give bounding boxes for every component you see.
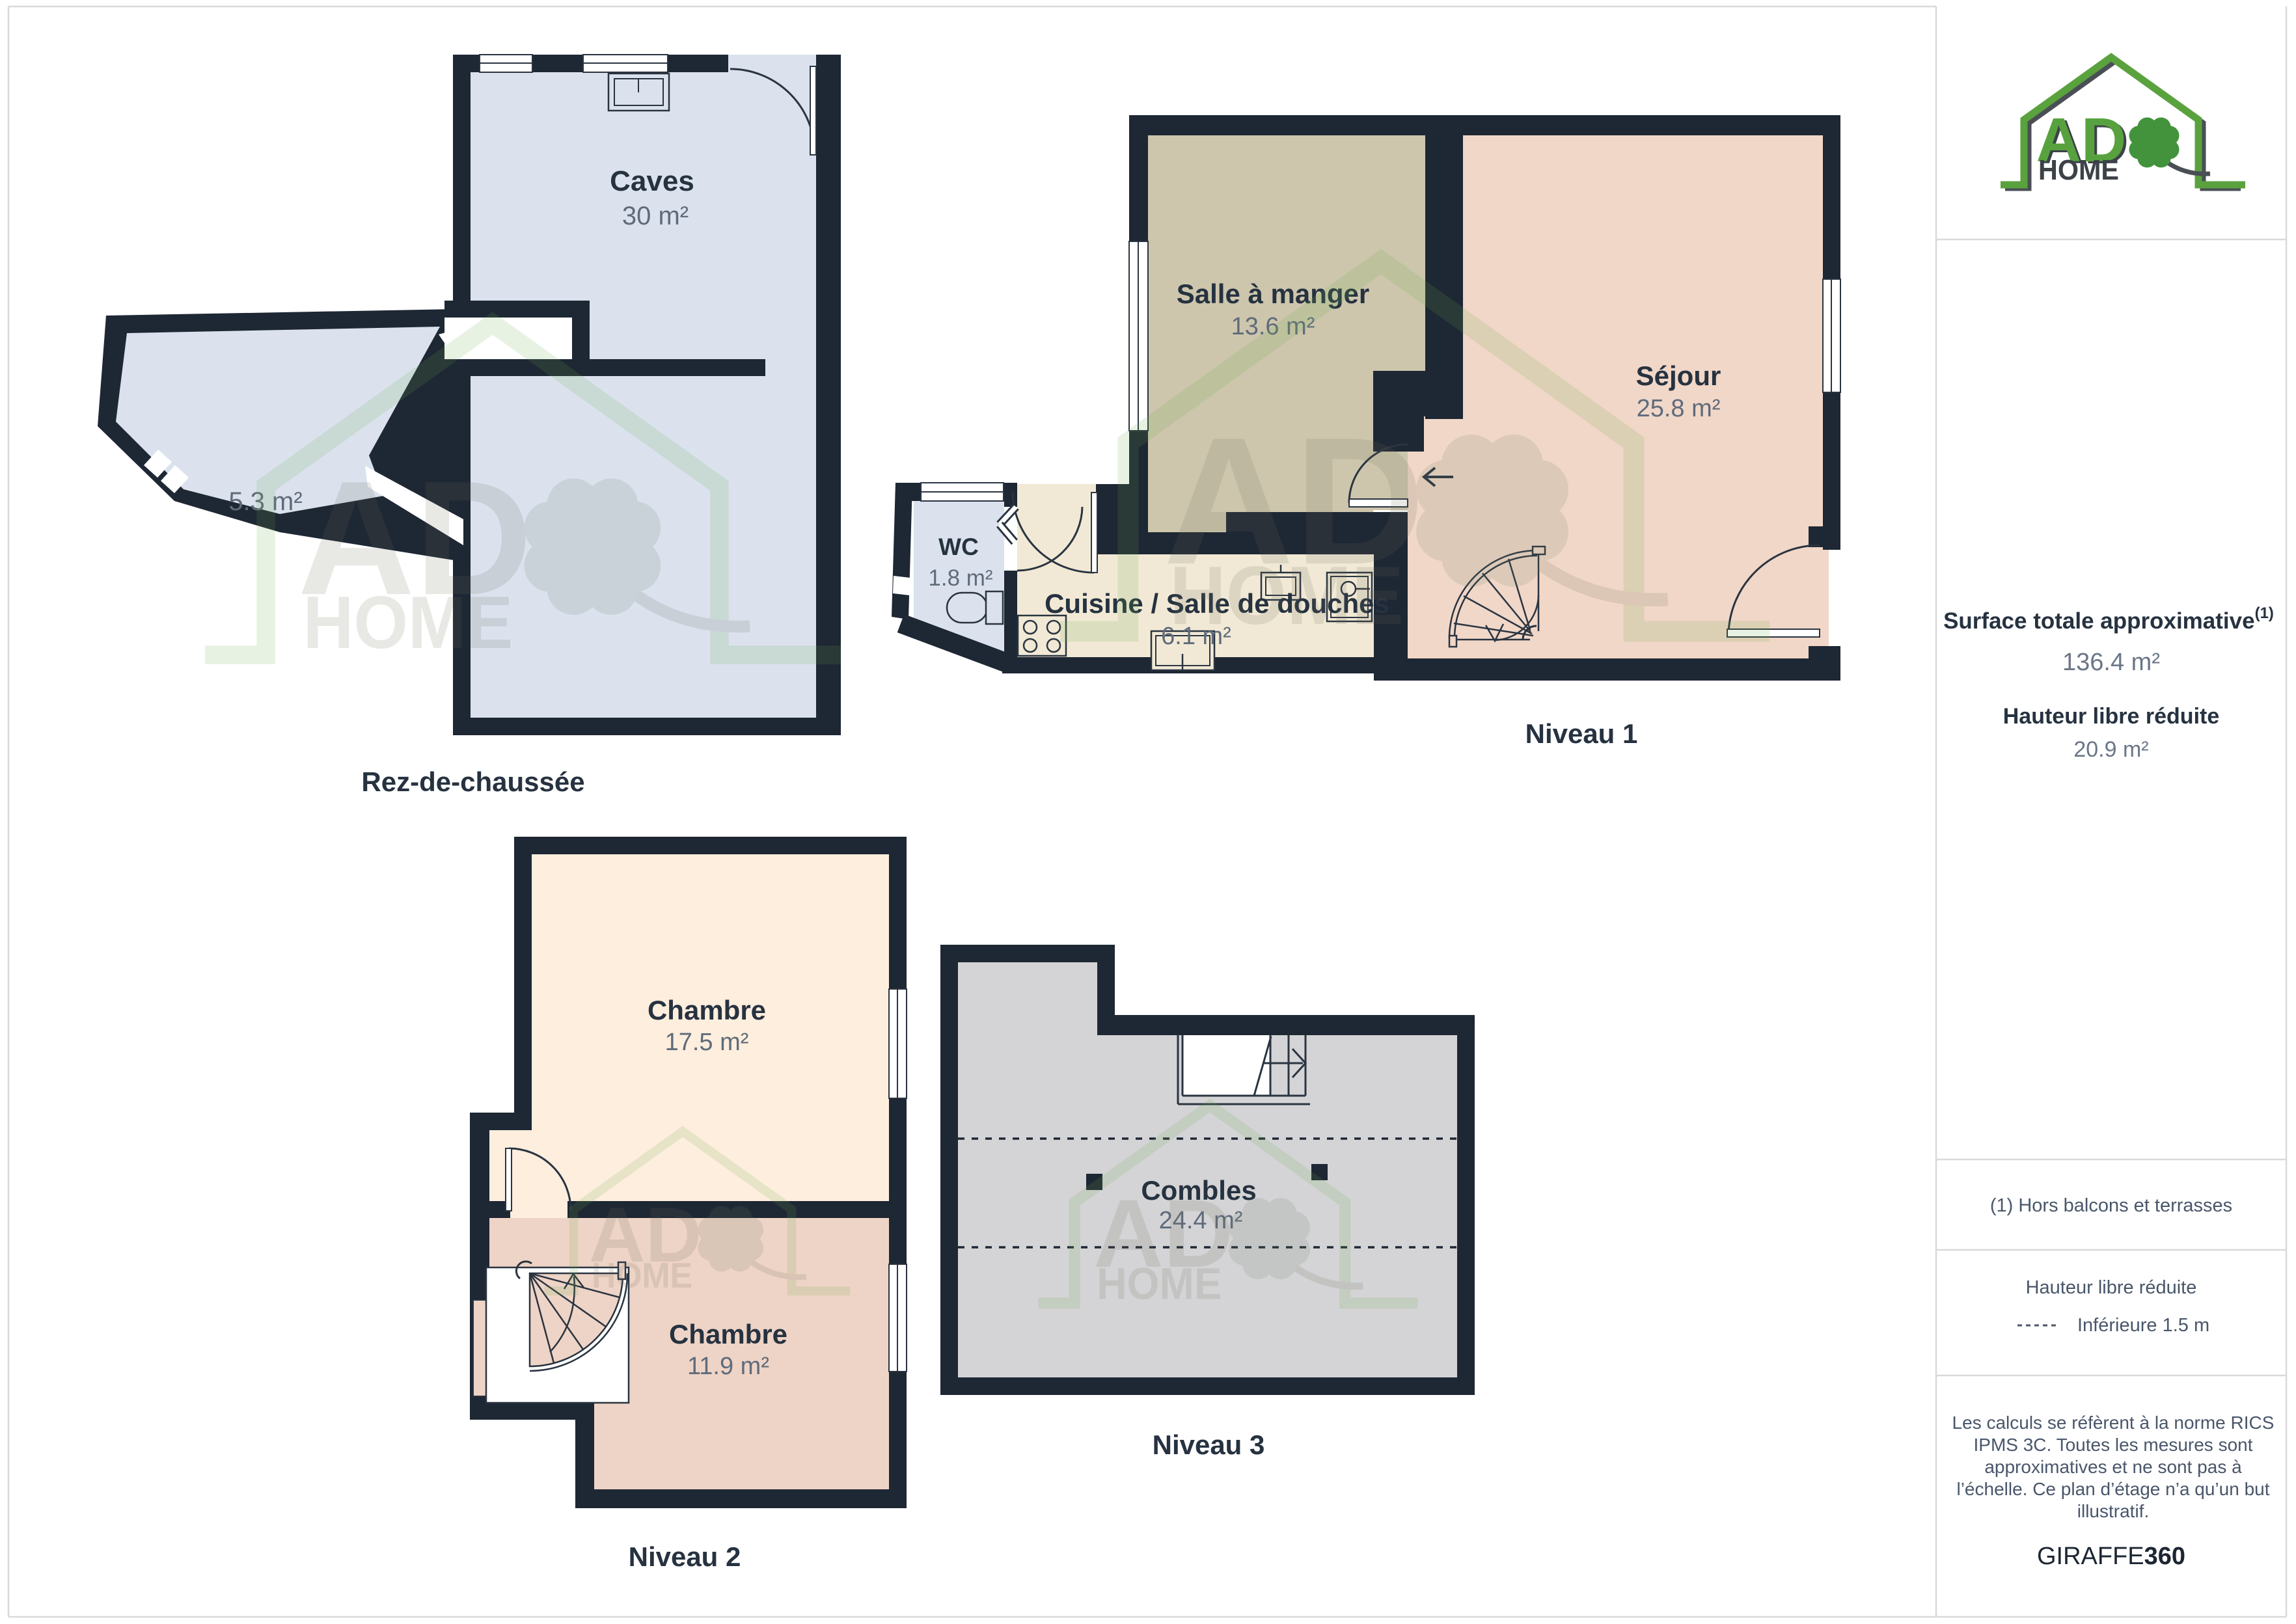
svg-text:Hauteur libre réduite: Hauteur libre réduite xyxy=(2026,1277,2197,1298)
svg-text:Caves: Caves xyxy=(610,165,694,197)
svg-text:l’échelle. Ce plan d’étage n’a: l’échelle. Ce plan d’étage n’a qu’un but xyxy=(1956,1479,2269,1499)
svg-text:Hauteur libre réduite: Hauteur libre réduite xyxy=(2003,704,2220,729)
svg-text:Inférieure 1.5 m: Inférieure 1.5 m xyxy=(2077,1315,2209,1336)
svg-text:1.8 m²: 1.8 m² xyxy=(928,565,992,591)
svg-text:11.9 m²: 11.9 m² xyxy=(687,1353,769,1380)
svg-text:20.9 m²: 20.9 m² xyxy=(2073,737,2148,762)
svg-text:approximatives et ne sont pas: approximatives et ne sont pas à xyxy=(1984,1457,2242,1477)
svg-text:Chambre: Chambre xyxy=(669,1319,787,1349)
svg-text:GIRAFFE360: GIRAFFE360 xyxy=(2037,1543,2185,1570)
svg-text:Niveau 1: Niveau 1 xyxy=(1525,718,1638,749)
svg-text:Niveau 3: Niveau 3 xyxy=(1153,1429,1265,1460)
svg-text:WC: WC xyxy=(938,534,979,560)
svg-text:(1) Hors balcons et terrasses: (1) Hors balcons et terrasses xyxy=(1990,1195,2232,1216)
svg-text:Chambre: Chambre xyxy=(648,995,766,1025)
svg-text:136.4 m²: 136.4 m² xyxy=(2062,649,2160,676)
svg-text:Niveau 2: Niveau 2 xyxy=(629,1541,741,1572)
svg-text:HOME: HOME xyxy=(2038,154,2119,186)
svg-text:Séjour: Séjour xyxy=(1636,360,1721,391)
svg-text:Les calculs se réfèrent à la n: Les calculs se réfèrent à la norme RICS xyxy=(1952,1413,2275,1433)
svg-text:Rez-de-chaussée: Rez-de-chaussée xyxy=(361,766,584,797)
svg-text:17.5 m²: 17.5 m² xyxy=(665,1029,749,1056)
svg-text:Surface totale approximative(1: Surface totale approximative(1) xyxy=(1943,604,2274,634)
svg-text:IPMS 3C. Toutes les mesures so: IPMS 3C. Toutes les mesures sont xyxy=(1974,1435,2253,1455)
svg-text:illustratif.: illustratif. xyxy=(2077,1501,2149,1521)
svg-text:25.8 m²: 25.8 m² xyxy=(1637,395,1721,422)
svg-text:30 m²: 30 m² xyxy=(622,202,689,230)
